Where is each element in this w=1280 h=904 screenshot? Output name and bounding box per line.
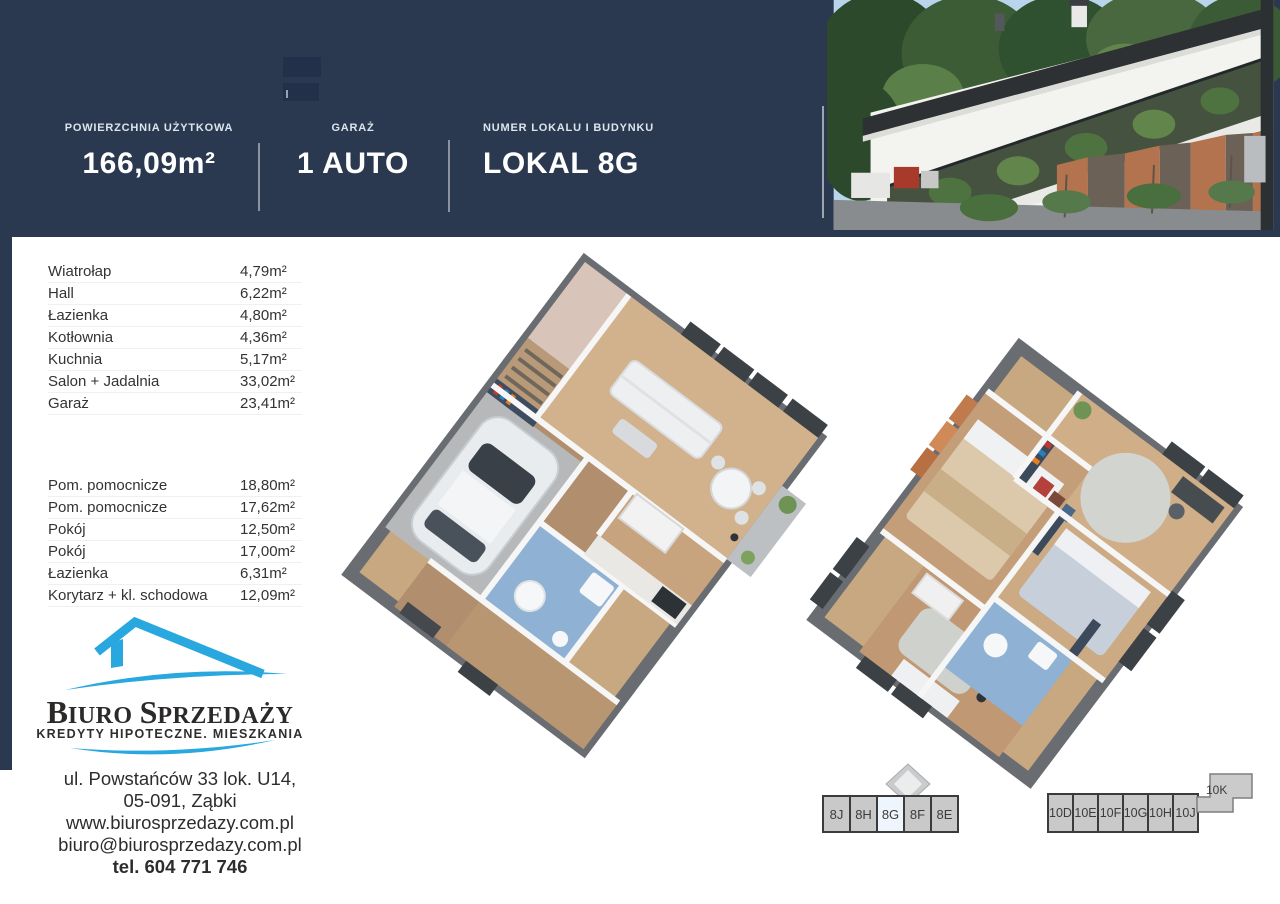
logo-word2-rest: PRZEDAŻY <box>157 703 293 729</box>
stat-value: 1 AUTO <box>262 147 444 181</box>
stat-label: POWIERZCHNIA UŻYTKOWA <box>40 122 258 134</box>
table-row: Pokój 12,50m² <box>48 519 302 541</box>
email-link[interactable]: biuro@biurosprzedazy.com.pl <box>20 834 340 856</box>
room-name: Kuchnia <box>48 351 240 368</box>
table-row: Salon + Jadalnia 33,02m² <box>48 371 302 393</box>
logo-word2-initial: S <box>140 694 158 730</box>
logo-subtitle: KREDYTY HIPOTECZNE. MIESZKANIA <box>35 727 305 741</box>
upper-floor-3d-plan <box>794 325 1257 802</box>
table-row: Kotłownia 4,36m² <box>48 327 302 349</box>
room-name: Korytarz + kl. schodowa <box>48 587 240 604</box>
unit-cell-8F[interactable]: 8F <box>903 795 932 833</box>
unit-cell-8J[interactable]: 8J <box>822 795 851 833</box>
unit-cell-10G[interactable]: 10G <box>1122 793 1149 833</box>
room-name: Hall <box>48 285 240 302</box>
room-area: 4,36m² <box>240 329 302 346</box>
room-name: Garaż <box>48 395 240 412</box>
unit-label: 10K <box>1206 783 1227 797</box>
room-name: Kotłownia <box>48 329 240 346</box>
header-divider <box>822 106 824 218</box>
room-name: Pokój <box>48 543 240 560</box>
address-line-2: 05-091, Ząbki <box>20 790 340 812</box>
room-area: 12,50m² <box>240 521 302 538</box>
unit-cell-8G[interactable]: 8G <box>876 795 905 833</box>
table-row: Łazienka 4,80m² <box>48 305 302 327</box>
contact-block: ul. Powstańców 33 lok. U14, 05-091, Ząbk… <box>20 768 340 878</box>
unit-cell-10K[interactable]: 10K <box>1190 768 1260 818</box>
stat-unit-number: NUMER LOKALU I BUDYNKU LOKAL 8G <box>483 122 823 181</box>
phone-number: tel. 604 771 746 <box>20 856 340 878</box>
room-area: 12,09m² <box>240 587 302 604</box>
stat-label: GARAŻ <box>262 122 444 134</box>
unit-strip-building-8: 8J8H8G8F8E <box>822 795 959 833</box>
redact-mark <box>286 90 288 98</box>
table-row: Garaż 23,41m² <box>48 393 302 415</box>
unit-cell-8E[interactable]: 8E <box>930 795 959 833</box>
table-row: Kuchnia 5,17m² <box>48 349 302 371</box>
stat-value: 166,09m² <box>40 147 258 181</box>
room-name: Salon + Jadalnia <box>48 373 240 390</box>
table-row: Pom. pomocnicze 18,80m² <box>48 475 302 497</box>
room-area: 6,22m² <box>240 285 302 302</box>
unit-cell-10F[interactable]: 10F <box>1097 793 1124 833</box>
room-area: 6,31m² <box>240 565 302 582</box>
unit-strip-building-10: 10D10E10F10G10H10J <box>1047 793 1199 833</box>
room-table-ground-floor: Wiatrołap 4,79m² Hall 6,22m² Łazienka 4,… <box>48 261 302 415</box>
room-name: Wiatrołap <box>48 263 240 280</box>
stat-usable-area: POWIERZCHNIA UŻYTKOWA 166,09m² <box>40 122 258 181</box>
logo-word1-initial: B <box>47 694 68 730</box>
left-accent-bar <box>0 237 12 770</box>
table-row: Pom. pomocnicze 17,62m² <box>48 497 302 519</box>
website-link[interactable]: www.biurosprzedazy.com.pl <box>20 812 340 834</box>
room-name: Pokój <box>48 521 240 538</box>
address-line-1: ul. Powstańców 33 lok. U14, <box>20 768 340 790</box>
room-area: 5,17m² <box>240 351 302 368</box>
redacted-box <box>283 83 319 101</box>
stat-label: NUMER LOKALU I BUDYNKU <box>483 122 823 134</box>
room-area: 17,00m² <box>240 543 302 560</box>
ground-floor-3d-plan <box>342 249 852 778</box>
header-divider <box>258 143 260 211</box>
unit-cell-10E[interactable]: 10E <box>1072 793 1099 833</box>
room-area: 17,62m² <box>240 499 302 516</box>
building-exterior-photo <box>827 0 1280 230</box>
room-area: 18,80m² <box>240 477 302 494</box>
unit-cell-10D[interactable]: 10D <box>1047 793 1074 833</box>
unit-cell-8H[interactable]: 8H <box>849 795 878 833</box>
redacted-box <box>283 57 321 77</box>
room-area: 33,02m² <box>240 373 302 390</box>
room-name: Łazienka <box>48 565 240 582</box>
logo-word1-rest: IURO <box>68 703 133 729</box>
table-row: Korytarz + kl. schodowa 12,09m² <box>48 585 302 607</box>
floor-plans <box>320 240 1280 820</box>
room-area: 23,41m² <box>240 395 302 412</box>
room-name: Łazienka <box>48 307 240 324</box>
table-row: Łazienka 6,31m² <box>48 563 302 585</box>
stat-value: LOKAL 8G <box>483 147 823 181</box>
logo-title: BIUROSPRZEDAŻY <box>35 694 305 731</box>
unit-cell-10H[interactable]: 10H <box>1147 793 1174 833</box>
stat-garage: GARAŻ 1 AUTO <box>262 122 444 181</box>
table-row: Wiatrołap 4,79m² <box>48 261 302 283</box>
room-name: Pom. pomocnicze <box>48 499 240 516</box>
room-name: Pom. pomocnicze <box>48 477 240 494</box>
table-row: Hall 6,22m² <box>48 283 302 305</box>
room-table-upper-floor: Pom. pomocnicze 18,80m² Pom. pomocnicze … <box>48 475 302 607</box>
table-row: Pokój 17,00m² <box>48 541 302 563</box>
room-area: 4,79m² <box>240 263 302 280</box>
room-area: 4,80m² <box>240 307 302 324</box>
header-divider <box>448 140 450 212</box>
